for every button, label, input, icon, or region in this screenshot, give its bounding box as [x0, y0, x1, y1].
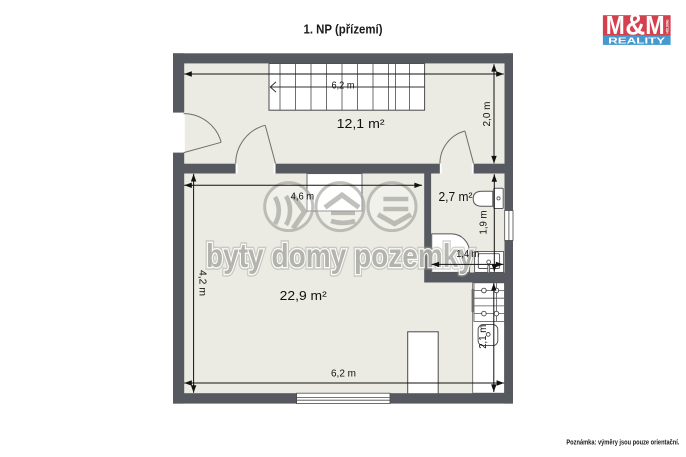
svg-text:1,9 m: 1,9 m	[478, 210, 490, 234]
svg-text:byty domy pozemky: byty domy pozemky	[206, 238, 474, 275]
svg-text:1. NP (přízemí): 1. NP (přízemí)	[304, 22, 383, 37]
svg-text:12,1 m²: 12,1 m²	[337, 116, 386, 131]
svg-text:4,6 m: 4,6 m	[291, 191, 315, 203]
svg-text:Poznámka: výměry jsou pouze or: Poznámka: výměry jsou pouze orientační.	[566, 438, 679, 447]
svg-text:6,2 m: 6,2 m	[331, 368, 356, 380]
svg-text:2,0 m: 2,0 m	[481, 101, 493, 126]
svg-text:6,2 m: 6,2 m	[332, 79, 355, 91]
svg-text:2,7 m²: 2,7 m²	[439, 189, 474, 204]
svg-text:REALITY: REALITY	[608, 35, 665, 45]
svg-text:1,4 m: 1,4 m	[456, 248, 479, 260]
svg-text:22,9 m²: 22,9 m²	[280, 288, 328, 303]
svg-text:HOLDING: HOLDING	[666, 19, 670, 33]
svg-text:4,2 m: 4,2 m	[197, 270, 209, 296]
svg-text:2,1 m: 2,1 m	[477, 325, 489, 349]
